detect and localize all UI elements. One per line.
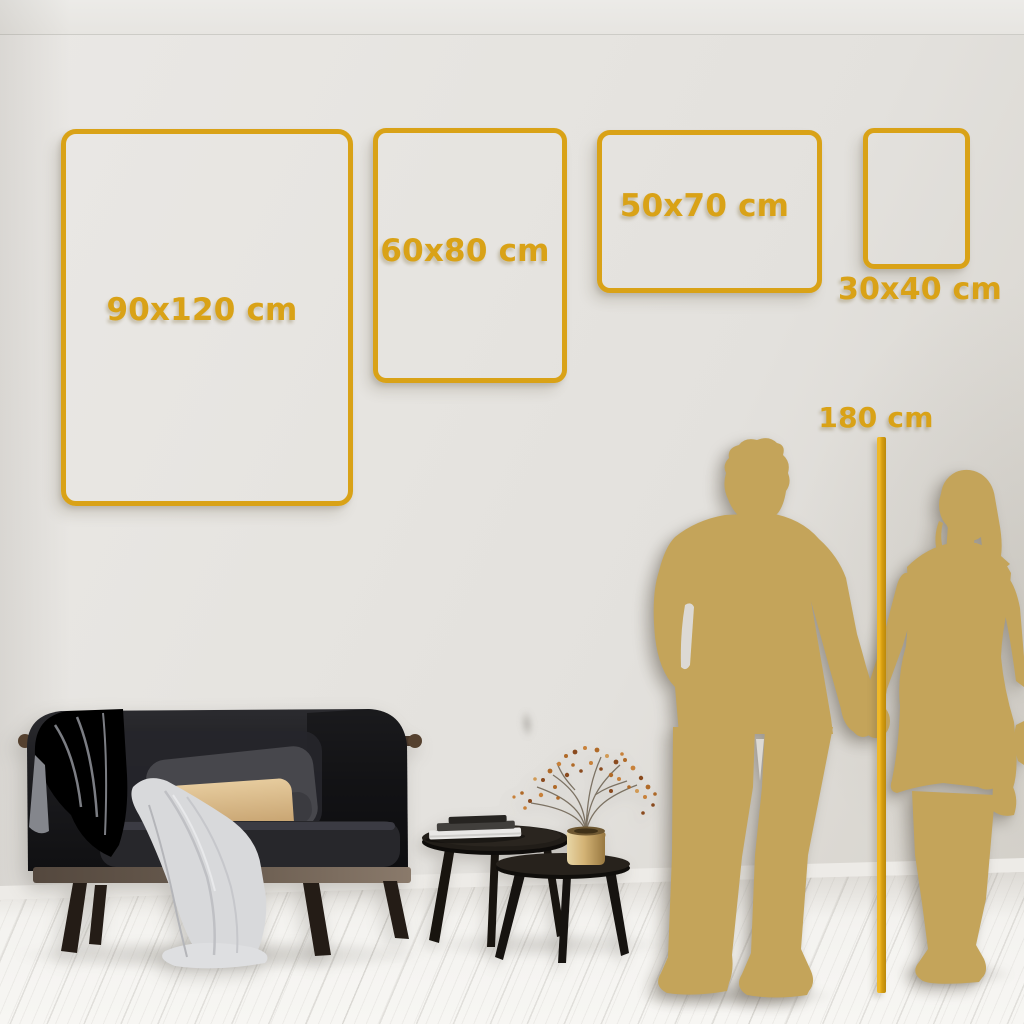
large-coffee-table	[422, 825, 568, 947]
woman-skirt-flap	[992, 785, 1016, 816]
frame-90x120-label: 90x120 cm	[61, 292, 343, 328]
frame-60x80-label: 60x80 cm	[373, 233, 557, 269]
ceiling-line	[0, 0, 1024, 35]
frame-30x40-label: 30x40 cm	[838, 272, 988, 307]
height-ruler-line	[877, 437, 886, 993]
man-left-leg	[658, 727, 755, 995]
couple-silhouette	[595, 425, 1024, 1020]
height-ruler-label: 180 cm	[796, 401, 956, 434]
frame-50x70-label: 50x70 cm	[597, 188, 812, 224]
man-head	[724, 438, 789, 524]
sofa	[15, 695, 425, 970]
held-hands	[851, 709, 875, 737]
frame-30x40	[863, 128, 970, 269]
books-stack	[425, 814, 526, 844]
woman-right-arm	[1003, 577, 1024, 687]
poster-size-guide-scene: 180 cm 90x120 cm 60x80 cm 50x70 cm 30x40…	[0, 0, 1024, 1024]
woman-head	[939, 479, 981, 531]
woman-leg	[912, 791, 995, 984]
man-silhouette	[654, 438, 881, 997]
